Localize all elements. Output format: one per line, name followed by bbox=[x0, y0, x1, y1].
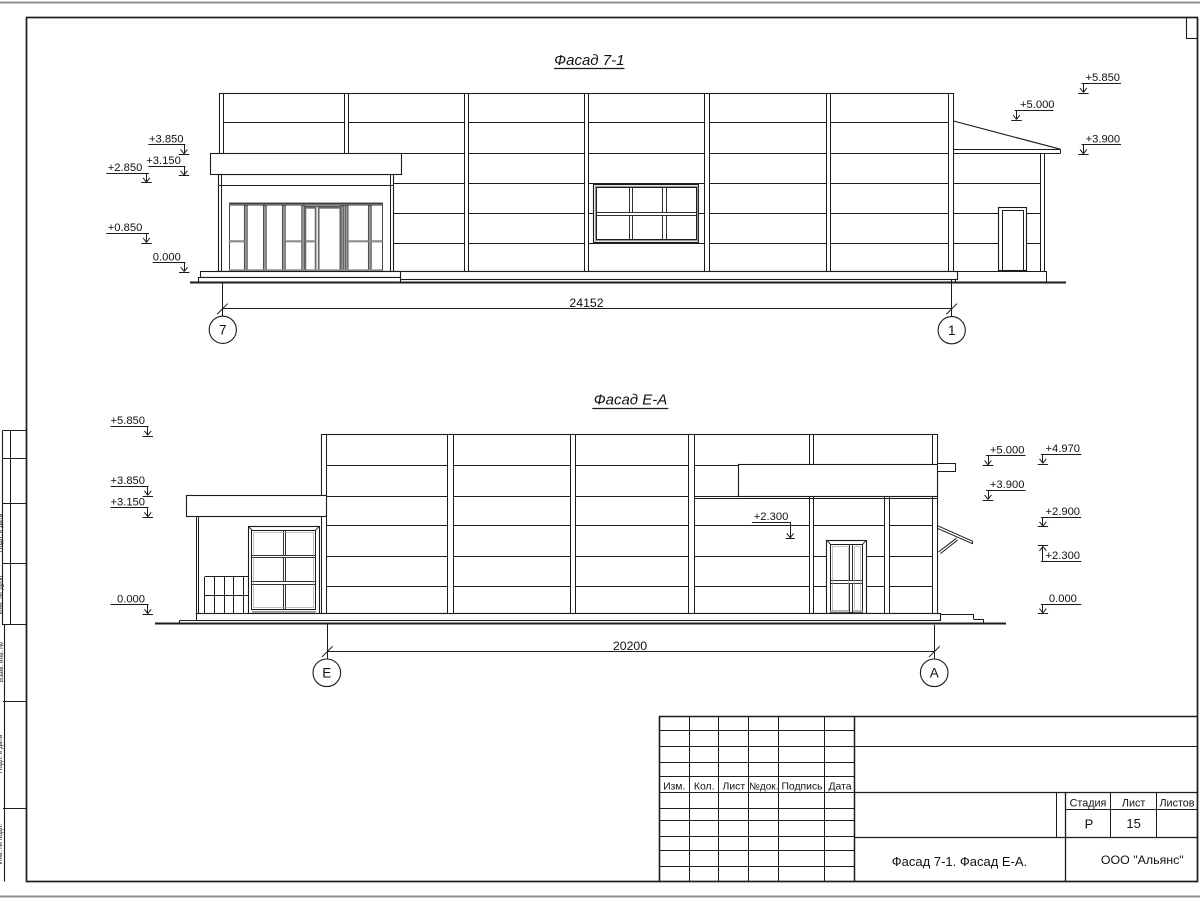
svg-text:Кол.: Кол. bbox=[694, 781, 715, 792]
svg-text:Лист: Лист bbox=[723, 781, 746, 792]
svg-text:Инв. № подл.: Инв. № подл. bbox=[0, 824, 4, 865]
svg-text:Фасад 7-1. Фасад Е-А.: Фасад 7-1. Фасад Е-А. bbox=[892, 854, 1027, 869]
svg-text:№док.: №док. bbox=[749, 781, 778, 792]
svg-text:0.000: 0.000 bbox=[117, 593, 145, 605]
svg-text:+4.970: +4.970 bbox=[1046, 443, 1081, 455]
svg-text:+2.850: +2.850 bbox=[108, 162, 143, 174]
svg-text:20200: 20200 bbox=[613, 639, 647, 653]
svg-text:+5.850: +5.850 bbox=[1086, 72, 1121, 84]
svg-text:Подп. и дата: Подп. и дата bbox=[0, 513, 4, 552]
svg-text:Лист: Лист bbox=[1122, 797, 1146, 809]
svg-text:15: 15 bbox=[1126, 816, 1140, 831]
svg-text:+3.900: +3.900 bbox=[1086, 134, 1121, 146]
svg-text:Р: Р bbox=[1085, 817, 1094, 832]
svg-text:Инв. № дубл.: Инв. № дубл. bbox=[0, 574, 5, 614]
svg-text:Изм.: Изм. bbox=[663, 781, 685, 792]
svg-text:Е: Е bbox=[322, 666, 331, 681]
svg-text:+2.300: +2.300 bbox=[754, 511, 789, 523]
svg-text:ООО "Альянс": ООО "Альянс" bbox=[1101, 853, 1184, 867]
svg-text:+3.900: +3.900 bbox=[990, 479, 1025, 491]
svg-text:+2.900: +2.900 bbox=[1046, 506, 1081, 518]
svg-text:7: 7 bbox=[219, 323, 227, 338]
svg-text:А: А bbox=[930, 666, 939, 681]
svg-text:Дата: Дата bbox=[828, 781, 851, 792]
svg-text:Подпись: Подпись bbox=[781, 781, 822, 792]
svg-text:Листов: Листов bbox=[1159, 797, 1194, 809]
svg-text:24152: 24152 bbox=[569, 296, 603, 310]
svg-text:0.000: 0.000 bbox=[153, 251, 181, 263]
svg-text:+5.850: +5.850 bbox=[110, 415, 145, 427]
svg-text:+3.150: +3.150 bbox=[110, 497, 145, 509]
svg-text:0.000: 0.000 bbox=[1049, 593, 1077, 605]
svg-text:+3.150: +3.150 bbox=[146, 155, 181, 167]
svg-text:+5.000: +5.000 bbox=[1020, 99, 1055, 111]
svg-text:Фасад 7-1: Фасад 7-1 bbox=[554, 52, 624, 69]
svg-text:+3.850: +3.850 bbox=[149, 134, 184, 146]
svg-text:Стадия: Стадия bbox=[1070, 797, 1107, 809]
svg-text:+0.850: +0.850 bbox=[108, 222, 143, 234]
svg-text:+5.000: +5.000 bbox=[990, 445, 1025, 457]
svg-text:Фасад Е-А: Фасад Е-А bbox=[594, 391, 668, 408]
svg-text:1: 1 bbox=[948, 323, 956, 338]
svg-text:+2.300: +2.300 bbox=[1046, 550, 1081, 562]
svg-text:+3.850: +3.850 bbox=[110, 475, 145, 487]
svg-text:Взам. инв. №: Взам. инв. № bbox=[0, 642, 5, 682]
svg-text:Подп. и дата: Подп. и дата bbox=[0, 734, 4, 773]
